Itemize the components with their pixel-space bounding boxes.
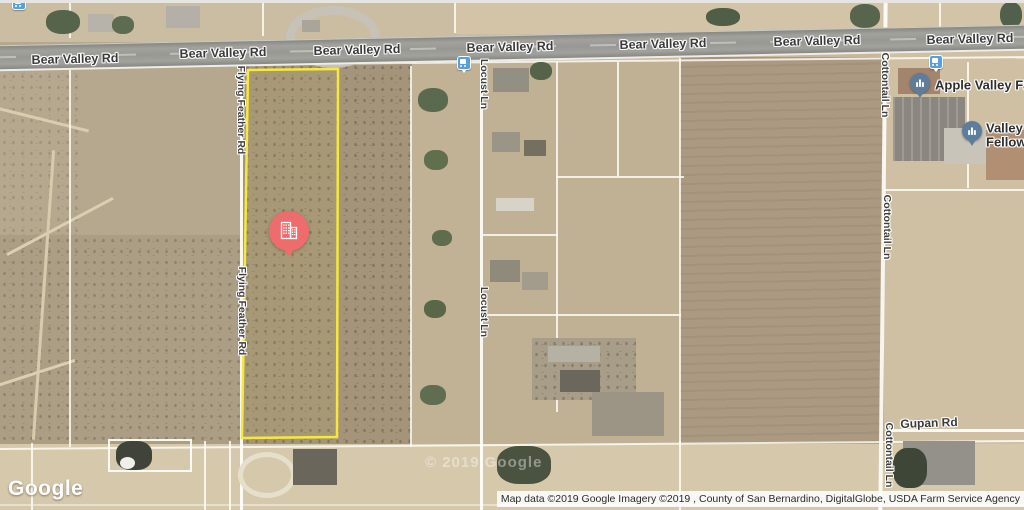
tree-cluster xyxy=(530,62,552,80)
poi-label-apple-valley[interactable]: Apple Valley Fa xyxy=(935,78,1024,93)
road-label-bear-valley: Bear Valley Rd xyxy=(926,31,1013,47)
driveway-loop xyxy=(238,452,296,498)
house xyxy=(302,20,320,32)
house xyxy=(490,260,520,282)
poi-label-valley-fellowship-line1[interactable]: Valley xyxy=(986,121,1023,136)
window-edge-strip xyxy=(0,0,1024,3)
yard-cluster xyxy=(592,392,664,436)
locust-road xyxy=(480,57,483,510)
road-label-bear-valley: Bear Valley Rd xyxy=(313,42,400,58)
map-attribution: Map data ©2019 Google Imagery ©2019 , Co… xyxy=(497,491,1024,507)
poi-label-valley-fellowship-line2[interactable]: Fellow xyxy=(986,135,1024,150)
road-label-cottontail: Cottontail Ln xyxy=(879,53,891,118)
parcel-line xyxy=(481,314,681,316)
tree-cluster xyxy=(706,8,740,26)
tree-cluster xyxy=(112,16,134,34)
parcel-line xyxy=(679,58,681,446)
road-label-bear-valley: Bear Valley Rd xyxy=(773,33,860,49)
parcel-line xyxy=(204,441,206,510)
bus-stop-icon[interactable] xyxy=(929,55,943,69)
house xyxy=(522,272,548,290)
parcel-line xyxy=(262,0,264,36)
parcel-line xyxy=(410,66,412,447)
terrain-right-parcel xyxy=(680,57,884,445)
marker-tail xyxy=(281,244,297,257)
road-label-flying-feather: Flying Feather Rd xyxy=(236,267,248,356)
bus-stop-icon[interactable] xyxy=(457,56,471,70)
road-label-bear-valley: Bear Valley Rd xyxy=(619,36,706,52)
imagery-watermark: © 2019 Google xyxy=(425,454,542,471)
parcel-line xyxy=(454,0,456,33)
road-label-cottontail: Cottontail Ln xyxy=(881,195,893,260)
house xyxy=(166,6,200,28)
tree-cluster xyxy=(424,150,448,170)
water-tank xyxy=(120,457,135,469)
parcel-line xyxy=(481,234,558,236)
buildings-icon xyxy=(277,219,301,243)
house xyxy=(524,140,546,156)
road-label-locust: Locust Ln xyxy=(478,59,490,109)
road-label-bear-valley: Bear Valley Rd xyxy=(466,39,553,55)
google-logo[interactable]: Google xyxy=(8,477,83,501)
house xyxy=(88,14,114,32)
tree-cluster xyxy=(420,385,446,405)
road-label-bear-valley: Bear Valley Rd xyxy=(31,51,118,67)
parcel-line xyxy=(884,189,1024,191)
trailer xyxy=(548,346,600,362)
road-label-gupan: Gupan Rd xyxy=(900,415,958,431)
parcel-line xyxy=(617,62,619,176)
parcel-line xyxy=(69,62,71,447)
tree-cluster xyxy=(893,448,927,488)
house xyxy=(492,132,520,152)
tree-cluster xyxy=(850,4,880,28)
road-label-bear-valley: Bear Valley Rd xyxy=(179,45,266,61)
tree-cluster xyxy=(424,300,446,318)
place-pin-icon[interactable] xyxy=(910,73,930,93)
parcel-line xyxy=(229,441,231,510)
place-pin-icon[interactable] xyxy=(962,121,982,141)
fountain-glyph xyxy=(913,76,927,90)
map-canvas[interactable]: Bear Valley Rd Bear Valley Rd Bear Valle… xyxy=(0,0,1024,510)
terrain-parcel-column xyxy=(243,62,412,447)
trailer xyxy=(496,198,534,211)
parcel-line xyxy=(556,176,684,178)
yard-cluster xyxy=(560,370,600,392)
tree-cluster xyxy=(46,10,80,34)
tree-cluster xyxy=(418,88,448,112)
property-marker[interactable] xyxy=(269,211,309,251)
house xyxy=(493,68,529,92)
house xyxy=(293,449,337,485)
tree-cluster xyxy=(432,230,452,246)
road-label-cottontail: Cottontail Ln xyxy=(883,423,895,488)
road-label-locust: Locust Ln xyxy=(478,287,490,337)
terrain-left-scrub-upper xyxy=(0,60,80,240)
fountain-glyph xyxy=(965,124,979,138)
road-label-flying-feather: Flying Feather Rd xyxy=(235,66,247,155)
